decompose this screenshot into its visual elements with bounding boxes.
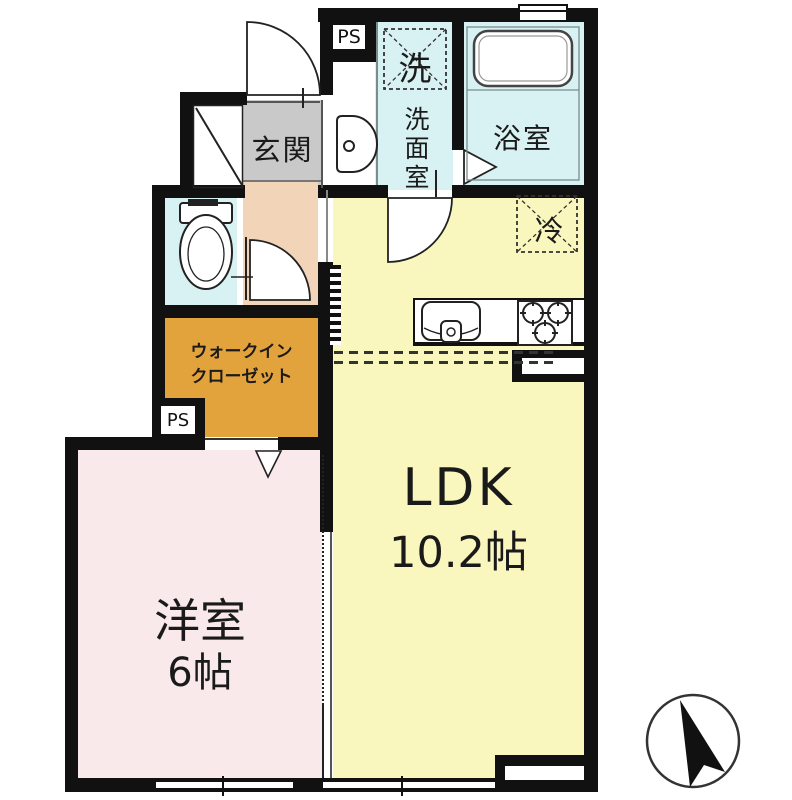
wall bbox=[452, 8, 464, 150]
wall bbox=[65, 437, 78, 792]
north-arrow bbox=[680, 700, 725, 787]
hall-ldk-opening-line bbox=[326, 190, 328, 262]
hallway-floor bbox=[243, 181, 318, 305]
ldk-label: LDK bbox=[333, 458, 584, 518]
washbasin-drain bbox=[344, 141, 354, 151]
north-arrow-compass bbox=[647, 695, 739, 787]
bedroom-size: 6帖 bbox=[78, 640, 322, 698]
window-tick bbox=[401, 776, 403, 796]
washer-symbol: 洗 bbox=[384, 42, 446, 90]
wall bbox=[180, 92, 193, 198]
fridge-symbol: 冷 bbox=[521, 208, 577, 250]
entrance-label: 玄関 bbox=[243, 127, 322, 169]
counter-edge-dashed bbox=[334, 361, 558, 364]
entrance-step-edge bbox=[243, 180, 322, 182]
wall bbox=[318, 185, 388, 198]
wall bbox=[152, 305, 333, 318]
window-tick bbox=[222, 776, 224, 796]
pipe-space-top-label: PS bbox=[337, 26, 361, 48]
ldk-size: 10.2帖 bbox=[333, 518, 584, 580]
closet-label-line1: ウォークイン bbox=[165, 337, 318, 362]
toilet-floor bbox=[165, 198, 237, 305]
wall bbox=[320, 8, 333, 95]
bathroom-floor bbox=[464, 22, 584, 185]
kitchen-counter bbox=[413, 298, 584, 346]
wall bbox=[180, 92, 247, 105]
pipe-space-bottom-label: PS bbox=[167, 410, 189, 431]
sliding-partition-dotted bbox=[322, 455, 324, 705]
closet-label-line2: クローゼット bbox=[165, 362, 318, 387]
pipe-space-top: PS bbox=[331, 23, 367, 51]
shoe-cabinet bbox=[193, 105, 243, 188]
vanity-line bbox=[376, 22, 378, 185]
entry-threshold bbox=[247, 101, 320, 103]
bathroom-vent bbox=[518, 4, 568, 22]
bedroom-window bbox=[156, 780, 293, 790]
wall-hatch bbox=[330, 265, 341, 345]
counter-edge-dashed bbox=[334, 351, 558, 354]
washbasin bbox=[337, 116, 377, 172]
wall bbox=[152, 185, 245, 198]
entry-door-swing bbox=[247, 22, 320, 95]
bathroom-label: 浴室 bbox=[464, 117, 582, 157]
corner-window-slot bbox=[505, 766, 584, 780]
ldk-window bbox=[323, 780, 495, 790]
floorplan-canvas: PS PS bbox=[0, 0, 792, 800]
wall bbox=[452, 185, 598, 198]
sliding-partition-rail bbox=[330, 532, 332, 778]
washroom-label: 洗面室 bbox=[397, 94, 433, 204]
sliding-partition-panel bbox=[322, 703, 324, 778]
wall bbox=[584, 8, 598, 792]
vent-line bbox=[520, 10, 566, 12]
pipe-space-bottom: PS bbox=[159, 404, 197, 436]
closet-door-track bbox=[205, 438, 278, 440]
